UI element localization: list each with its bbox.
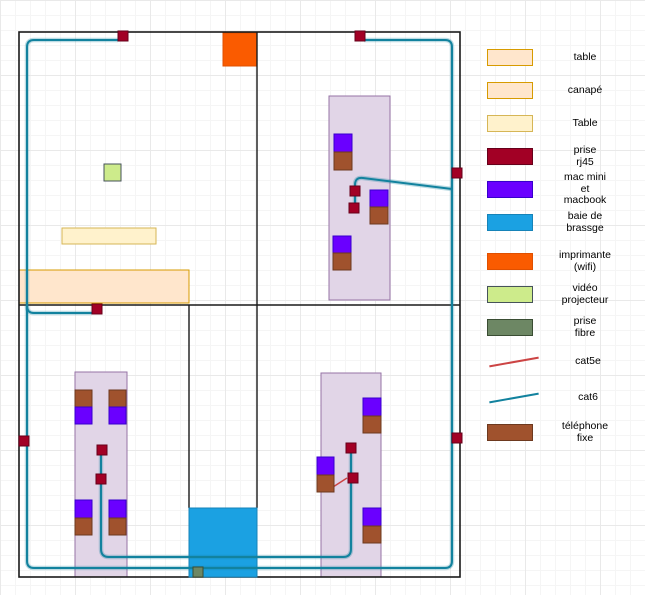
fibre-swatch	[487, 319, 533, 336]
rj45-outlet	[350, 186, 360, 196]
canape-swatch	[487, 82, 533, 99]
legend-item-telephone: téléphone fixe	[487, 424, 637, 441]
phone-device	[109, 518, 126, 535]
phone-device	[109, 390, 126, 407]
legend-item-prise-rj45: prise rj45	[487, 148, 637, 165]
legend-item-baie: baie de brassge	[487, 214, 637, 231]
mac-swatch	[487, 181, 533, 198]
legend-item-canape: canapé	[487, 82, 637, 99]
phone-device	[363, 526, 381, 543]
mac-device	[317, 457, 334, 475]
table-swatch	[487, 49, 533, 66]
legend-item-label: Table	[533, 118, 637, 130]
rj45-outlet	[92, 304, 102, 314]
cat6-cable-halo	[27, 306, 92, 313]
legend-item-label: imprimante (wifi)	[533, 250, 637, 273]
legend-item-label: canapé	[533, 85, 637, 97]
phone-device	[75, 518, 92, 535]
legend-item-label: prise rj45	[533, 145, 637, 168]
legend-item-imprimante: imprimante (wifi)	[487, 253, 637, 270]
baie-swatch	[487, 214, 533, 231]
legend-item-label: prise fibre	[533, 316, 637, 339]
legend-item-label: téléphone fixe	[533, 421, 637, 444]
rj45-outlet	[96, 474, 106, 484]
phone-swatch	[487, 424, 533, 441]
phone-device	[370, 207, 388, 224]
mac-device	[333, 236, 351, 253]
rj45-outlet	[346, 443, 356, 453]
legend-item-cat6: cat6	[487, 388, 637, 408]
phone-device	[363, 416, 381, 433]
table2-swatch	[487, 115, 533, 132]
mac-device	[334, 134, 352, 152]
rj45-outlet	[349, 203, 359, 213]
legend-item-video-projecteur: vidéo projecteur	[487, 286, 637, 303]
imprimante-swatch	[487, 253, 533, 270]
legend-item-table2: Table	[487, 115, 637, 132]
rj45-outlet	[355, 31, 365, 41]
legend-item-label: mac mini et macbook	[533, 172, 637, 207]
legend-item-label: cat6	[539, 392, 637, 404]
legend-item-label: vidéo projecteur	[533, 283, 637, 306]
cat6-line-swatch	[489, 393, 539, 404]
cat5e-line-swatch	[489, 357, 539, 368]
phone-device	[334, 152, 352, 170]
mac-device	[109, 407, 126, 424]
legend-item-cat5e: cat5e	[487, 352, 637, 372]
rj45-outlet	[97, 445, 107, 455]
phone-device	[317, 475, 334, 492]
mac-device	[109, 500, 126, 518]
fibre-outlet	[193, 567, 203, 577]
rj45-outlet	[348, 473, 358, 483]
table-small	[62, 228, 156, 244]
legend-item-label: baie de brassge	[533, 211, 637, 234]
rj45-swatch	[487, 148, 533, 165]
video-swatch	[487, 286, 533, 303]
legend-item-mac-mini: mac mini et macbook	[487, 181, 637, 198]
phone-device	[333, 253, 351, 270]
legend-item-table: table	[487, 49, 637, 66]
mac-device	[363, 398, 381, 416]
canape	[19, 270, 189, 303]
phone-device	[75, 390, 92, 407]
mac-device	[370, 190, 388, 207]
mac-device	[75, 407, 92, 424]
video-projecteur	[104, 164, 121, 181]
legend-item-label: cat5e	[539, 356, 637, 368]
rj45-outlet	[19, 436, 29, 446]
rj45-outlet	[118, 31, 128, 41]
mac-device	[75, 500, 92, 518]
rj45-outlet	[452, 433, 462, 443]
legend-item-label: table	[533, 52, 637, 64]
mac-device	[363, 508, 381, 526]
rj45-outlet	[452, 168, 462, 178]
imprimante-wifi	[223, 33, 257, 66]
legend: table canapé Table prise rj45 mac mini e…	[487, 49, 637, 457]
legend-item-prise-fibre: prise fibre	[487, 319, 637, 336]
